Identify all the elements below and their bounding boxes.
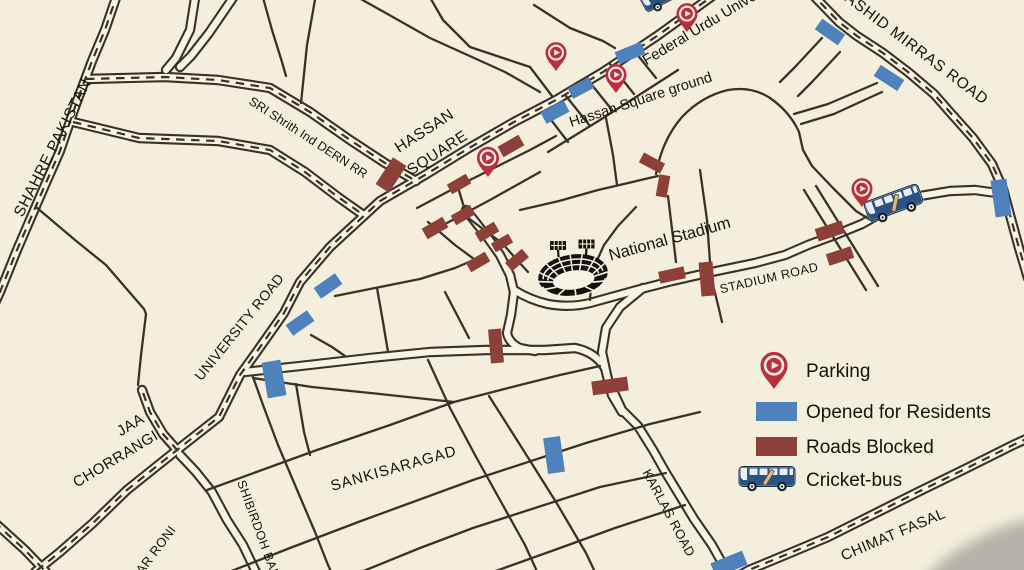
svg-text:Roads Blocked: Roads Blocked [806, 437, 934, 458]
svg-text:Opened for Residents: Opened for Residents [806, 402, 991, 423]
svg-text:Cricket-bus: Cricket-bus [806, 470, 902, 491]
svg-text:Parking: Parking [806, 361, 870, 382]
